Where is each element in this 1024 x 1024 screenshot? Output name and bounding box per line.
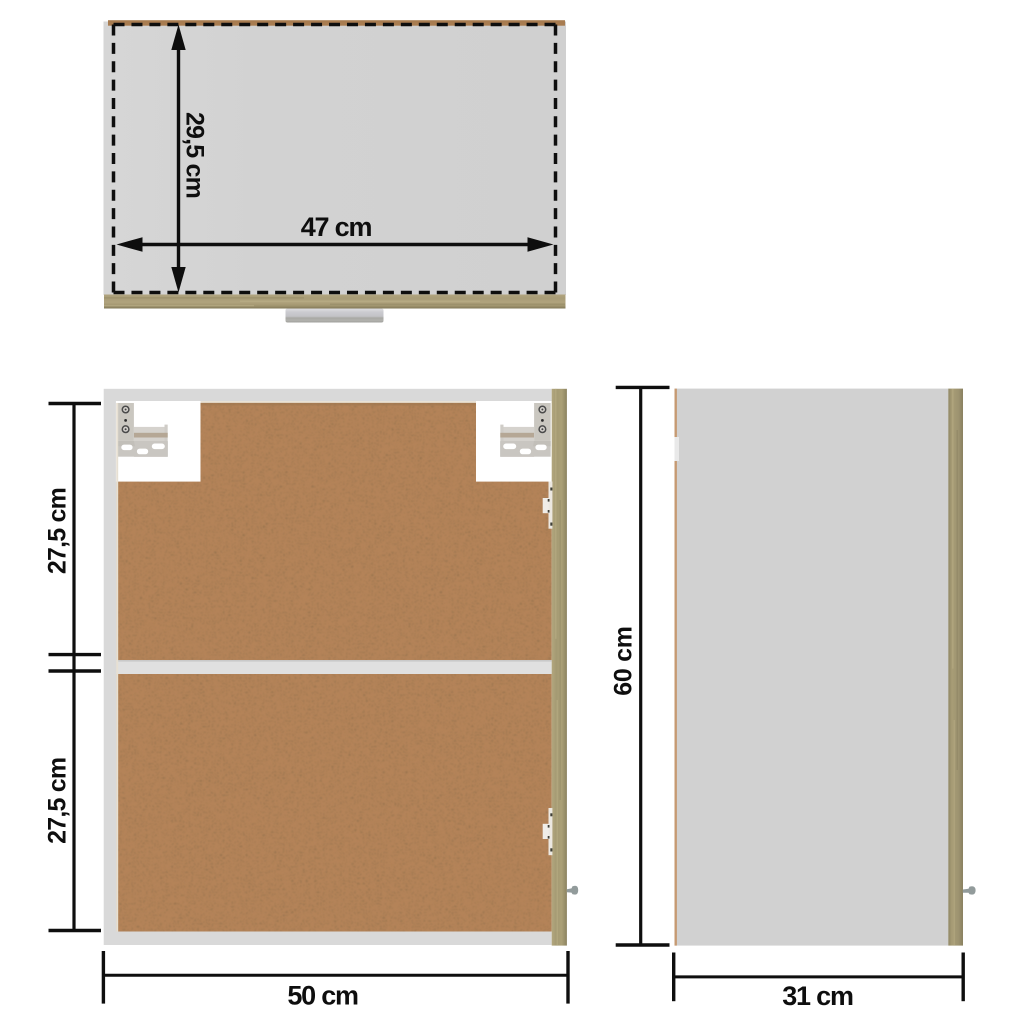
svg-text:31 cm: 31 cm [782, 981, 853, 1011]
svg-text:60 cm: 60 cm [610, 626, 638, 695]
svg-text:47 cm: 47 cm [301, 212, 372, 242]
svg-text:29,5 cm: 29,5 cm [181, 112, 209, 198]
svg-text:27,5 cm: 27,5 cm [44, 488, 72, 574]
svg-text:50 cm: 50 cm [287, 980, 358, 1010]
svg-text:27,5 cm: 27,5 cm [44, 758, 72, 844]
